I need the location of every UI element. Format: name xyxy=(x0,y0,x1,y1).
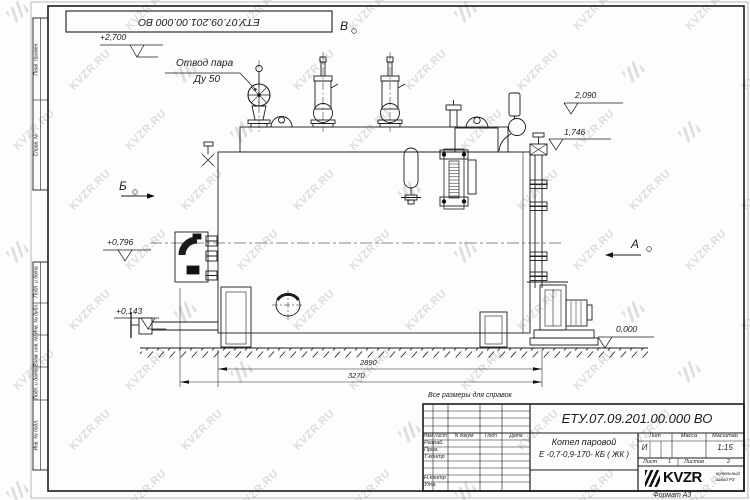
row-utv: Утв. xyxy=(424,483,437,489)
drawing-sheet: KVZR.RUKVZR.RUKVZR.RUKVZR.RUKVZR.RUKVZR.… xyxy=(0,0,750,500)
margin-label-sprav-no: Справ. № xyxy=(35,134,40,157)
doc-number: ЕТУ.07.09.201.00.000 ВО xyxy=(530,404,744,433)
lifting-lugs xyxy=(271,117,488,128)
reference-note: Все размеры для справок xyxy=(428,392,512,399)
safety-valve-1 xyxy=(311,57,338,127)
lit-label: Лит xyxy=(638,434,672,440)
level-gauge xyxy=(440,149,476,209)
control-cabinet xyxy=(446,93,526,152)
row-prov: Пров. xyxy=(424,448,439,454)
sheet-number: 1 xyxy=(668,460,671,466)
col-izm: Изм xyxy=(423,434,433,439)
kvzr-logo-sub1: котельный xyxy=(716,472,740,477)
margin-label-perv-primen: Перв. примен. xyxy=(35,42,40,75)
separator xyxy=(401,148,421,204)
feed-pipe xyxy=(530,133,547,288)
dimension-label-2890: 2890 xyxy=(360,359,377,367)
col-list: Лист xyxy=(433,434,448,439)
row-nkontr: Н.контр xyxy=(424,476,446,482)
margin-label-inv-dubl: Инв. № дубл. xyxy=(35,304,40,335)
elevation-mark-0000: 0,000 xyxy=(616,325,637,334)
boiler-body xyxy=(150,52,562,333)
view-label-b: Б xyxy=(119,180,127,192)
view-label-v: В xyxy=(340,20,348,32)
margin-label-podp-data-2: Подп. и дата xyxy=(35,368,40,399)
blowdown-valve xyxy=(131,312,218,338)
col-podp: Подп xyxy=(480,434,502,439)
row-razrab: Разраб. xyxy=(424,441,444,447)
kvzr-logo-sub2: завод РЗ xyxy=(716,478,735,483)
burner xyxy=(175,232,208,282)
margin-label-podp-data-1: Подп. и дата xyxy=(35,266,40,297)
margin-label-vzam-inv: Взам. инв. № xyxy=(35,336,40,367)
product-name-line2: Е -0,7-0,9-170- КБ ( ЖК ) xyxy=(530,451,638,459)
lit-value: И xyxy=(639,444,650,452)
kvzr-logo-icon xyxy=(645,470,660,487)
format-note: Формат А3 xyxy=(653,492,691,499)
col-date: Дата xyxy=(502,434,530,439)
stamp-number: ЕТУ.07.09.201.00.000 ВО xyxy=(66,11,332,32)
product-name-line1: Котел паровой xyxy=(530,438,638,447)
scale-value: 1:15 xyxy=(706,444,744,452)
elevation-mark-2090: 2,090 xyxy=(575,91,596,100)
margin-label-inv-podl: Инв. № подл. xyxy=(35,419,40,450)
view-label-a: А xyxy=(631,238,639,250)
safety-valve-2 xyxy=(378,57,405,127)
steam-outlet-valve xyxy=(248,65,270,127)
dimension-label-3270: 3270 xyxy=(348,372,365,380)
col-doc: N докум xyxy=(448,434,480,439)
steam-outlet-callout-line2: Ду 50 xyxy=(194,75,220,85)
feed-pump xyxy=(527,282,598,345)
support-legs xyxy=(221,287,507,347)
elevation-mark-0143: +0,143 xyxy=(116,307,142,316)
elevation-mark-1746: 1,746 xyxy=(564,128,585,137)
elevation-mark-2700: +2,700 xyxy=(100,33,126,42)
scale-label: Масштаб xyxy=(706,434,744,440)
manhole xyxy=(272,290,304,320)
kvzr-logo-text: KVZR xyxy=(663,470,702,485)
ground-line xyxy=(140,348,648,358)
sheets-count: 2 xyxy=(727,460,730,466)
sheet-label: Лист xyxy=(643,460,657,466)
row-tkontr: Т.контр xyxy=(424,455,445,461)
left-nozzles xyxy=(202,142,217,280)
mass-label: Масса xyxy=(672,434,706,440)
sheets-label: Листов xyxy=(684,460,704,466)
elevation-mark-0796: +0,796 xyxy=(107,238,133,247)
steam-outlet-callout-line1: Отвод пара xyxy=(176,59,233,69)
